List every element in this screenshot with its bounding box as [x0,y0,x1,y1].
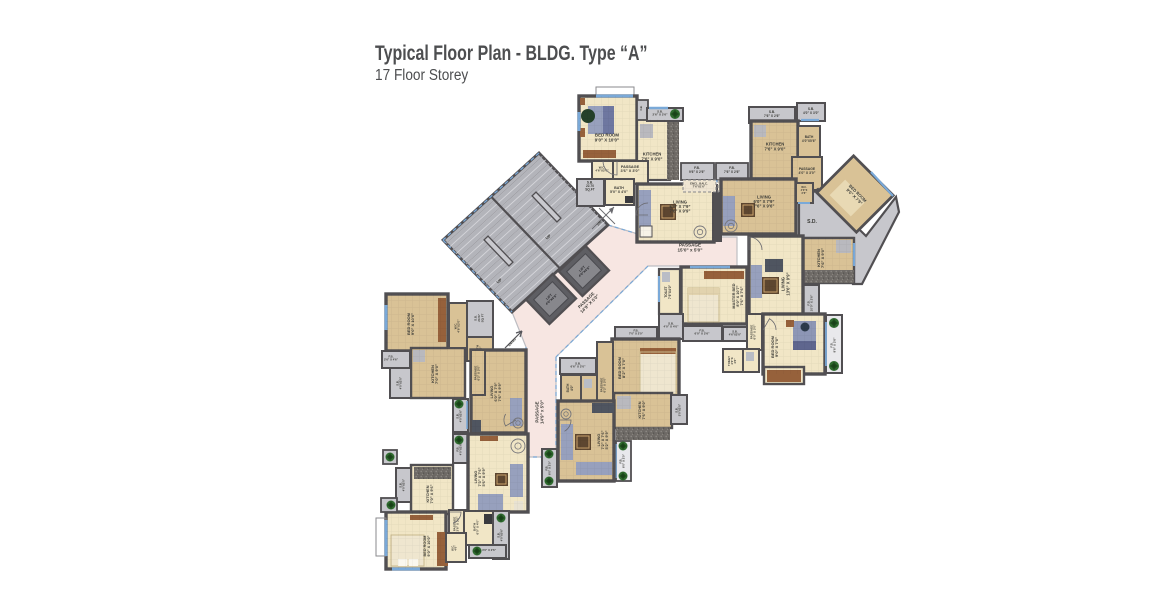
svg-text:PASSAGE4’0” X 3’0”: PASSAGE4’0” X 3’0” [799,167,816,175]
svg-text:PASSAGE14’9” x 5’0”: PASSAGE14’9” x 5’0” [535,400,545,424]
svg-text:PASSAGE15’0” x 5’0”: PASSAGE15’0” x 5’0” [677,242,702,252]
svg-text:PASSAGE3’6” X 3’0”: PASSAGE3’6” X 3’0” [621,165,640,173]
svg-text:TOILET7’6”X4’0”: TOILET7’6”X4’0” [664,285,672,300]
svg-text:PASSAGE6’2” X 3’0”: PASSAGE6’2” X 3’0” [599,377,606,393]
svg-text:S.D.: S.D. [807,219,817,225]
svg-text:W.C.4’0”: W.C.4’0” [450,545,457,551]
svg-text:F.B.: F.B. [639,105,643,110]
svg-text:PASSAGE6’0” X 3’0”: PASSAGE6’0” X 3’0” [749,324,756,340]
svg-text:4’0” X 2’6”: 4’0” X 2’6” [482,548,497,552]
svg-text:PASSAGE3’6” X 3’0”: PASSAGE3’6” X 3’0” [452,516,459,532]
